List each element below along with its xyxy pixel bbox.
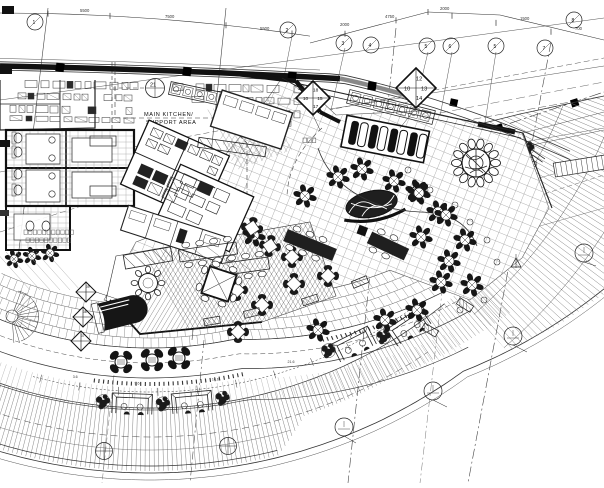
- svg-text:13: 13: [421, 86, 427, 92]
- svg-text:5: 5: [494, 44, 497, 50]
- svg-text:10: 10: [303, 96, 309, 102]
- svg-text:17: 17: [313, 104, 319, 110]
- svg-text:1500: 1500: [520, 16, 530, 21]
- svg-text:12: 12: [416, 76, 422, 82]
- svg-text:7500: 7500: [165, 14, 175, 19]
- svg-text:18: 18: [313, 88, 319, 94]
- svg-text:14: 14: [416, 96, 422, 102]
- svg-text:2000: 2000: [340, 22, 350, 27]
- svg-text:2000: 2000: [440, 6, 450, 11]
- svg-text:2: 2: [286, 28, 289, 34]
- svg-text:21: 21: [150, 83, 156, 89]
- svg-text:1: 1: [33, 20, 36, 26]
- svg-text:MAIN KITCHEN/: MAIN KITCHEN/: [144, 112, 193, 118]
- svg-text:08: 08: [83, 310, 87, 314]
- svg-text:09: 09: [86, 285, 90, 289]
- svg-text:8: 8: [572, 18, 575, 24]
- svg-text:6: 6: [449, 44, 452, 50]
- svg-text:5500: 5500: [80, 8, 90, 13]
- svg-text:15: 15: [317, 96, 323, 102]
- svg-text:5: 5: [425, 44, 428, 50]
- svg-text:3: 3: [342, 41, 345, 47]
- svg-text:7.6: 7.6: [359, 330, 364, 334]
- svg-text:7: 7: [543, 46, 546, 52]
- svg-text:07: 07: [81, 334, 85, 338]
- svg-text:21.6: 21.6: [288, 360, 295, 364]
- svg-text:4: 4: [369, 43, 372, 49]
- svg-text:10: 10: [404, 86, 410, 92]
- svg-text:14.6: 14.6: [212, 378, 219, 382]
- svg-text:5500: 5500: [260, 26, 270, 31]
- svg-text:3.6: 3.6: [73, 375, 78, 379]
- svg-text:9.6: 9.6: [135, 382, 140, 386]
- svg-text:4750: 4750: [385, 14, 395, 19]
